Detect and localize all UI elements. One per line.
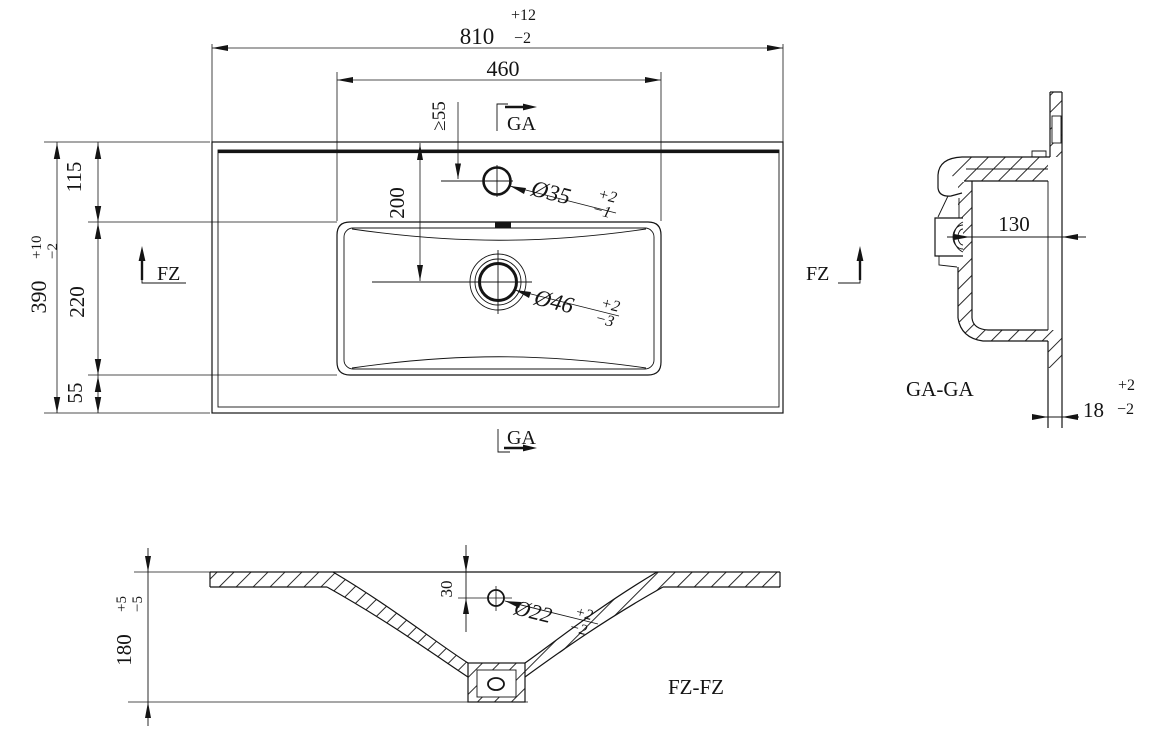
- section-ga-view: 130 18 +2 −2 GA-GA: [906, 92, 1135, 428]
- leader-dia46-tol-dn: −3: [593, 310, 615, 331]
- dim-55: 55: [63, 383, 87, 404]
- dim-220-value: 220: [65, 286, 89, 318]
- label-ga-ga: GA-GA: [906, 377, 974, 401]
- marker-fz-right: FZ: [806, 246, 863, 285]
- basin-bottom-curve: [352, 357, 646, 368]
- dim-390: 390 +10 −2: [26, 236, 61, 314]
- leader-dia35-tol-dn: −1: [590, 201, 612, 222]
- fz-left-shell-hatch: [210, 572, 468, 677]
- plan-view: 810 +12 −2 460 390 +10 −2 115 220 55 ≥55…: [26, 7, 863, 452]
- drawing-page: 810 +12 −2 460 390 +10 −2 115 220 55 ≥55…: [0, 0, 1156, 742]
- dim-min55: ≥55: [429, 101, 450, 130]
- dim-810-tol-up: +12: [511, 7, 536, 24]
- plan-dim-arrows: [54, 45, 783, 413]
- dim-200-value: 200: [385, 187, 409, 219]
- leader-dia35-value: Ø35: [528, 175, 573, 209]
- dim-810: 810 +12 −2: [460, 7, 536, 49]
- marker-fz-left: FZ: [139, 246, 186, 285]
- dim-30-value: 30: [437, 581, 456, 598]
- dim-18-tol-up: +2: [1118, 377, 1135, 394]
- ga-notch-fill: [1052, 116, 1061, 143]
- leader-dia46-value: Ø46: [531, 284, 577, 318]
- dim-18-value: 18: [1083, 398, 1104, 422]
- dim-390-tol-up: +10: [29, 236, 45, 259]
- dim-810-value: 810: [460, 24, 495, 49]
- label-fz-fz: FZ-FZ: [668, 675, 724, 699]
- plan-extension-lines: [44, 44, 783, 413]
- leader-dia35: Ø35 +2 −1: [510, 170, 619, 223]
- leader-dia22: Ø22 +2 −2: [505, 590, 598, 640]
- marker-ga-bottom-label: GA: [507, 427, 536, 449]
- marker-ga-top-label: GA: [507, 113, 536, 135]
- dim-30: 30: [437, 545, 469, 632]
- section-fz-view: 180 +5 −5 30 Ø22 +2 −2: [112, 545, 780, 726]
- drain-hole: [372, 250, 532, 314]
- dim-min55-value: ≥55: [429, 101, 450, 130]
- plan-outline: [212, 142, 783, 413]
- dim-810-tol-dn: −2: [514, 30, 531, 47]
- leader-dia46: Ø46 +2 −3: [515, 279, 622, 332]
- fz-trap-hatch: [468, 663, 525, 702]
- dim-180-value: 180: [112, 634, 136, 666]
- marker-ga-top: GA: [497, 104, 537, 135]
- dim-115: 115: [62, 162, 86, 193]
- dim-460-value: 460: [487, 56, 520, 81]
- dim-180-tol-dn: −5: [130, 596, 146, 612]
- dim-130-value: 130: [998, 212, 1030, 236]
- marker-fz-left-label: FZ: [157, 263, 180, 285]
- basin-top-curve: [352, 229, 646, 240]
- leader-dia22-value: Ø22: [511, 594, 555, 628]
- dim-55-value: 55: [63, 383, 87, 404]
- technical-drawing: 810 +12 −2 460 390 +10 −2 115 220 55 ≥55…: [0, 0, 1156, 742]
- dim-115-value: 115: [62, 162, 86, 193]
- faucet-hole: [441, 165, 513, 197]
- plan-inner-outline: [218, 150, 779, 407]
- dim-180-tol-up: +5: [114, 596, 130, 612]
- fz-right-shell-hatch: [525, 572, 780, 677]
- marker-ga-bottom: GA: [498, 427, 537, 452]
- ga-bottom-hatch: [1048, 330, 1062, 368]
- marker-fz-right-label: FZ: [806, 263, 829, 285]
- dim-390-tol-dn: −2: [45, 243, 61, 259]
- dim-18-tol-dn: −2: [1117, 401, 1134, 418]
- dim-220: 220: [65, 286, 89, 318]
- dim-390-value: 390: [26, 281, 51, 314]
- dim-200: 200: [385, 187, 409, 219]
